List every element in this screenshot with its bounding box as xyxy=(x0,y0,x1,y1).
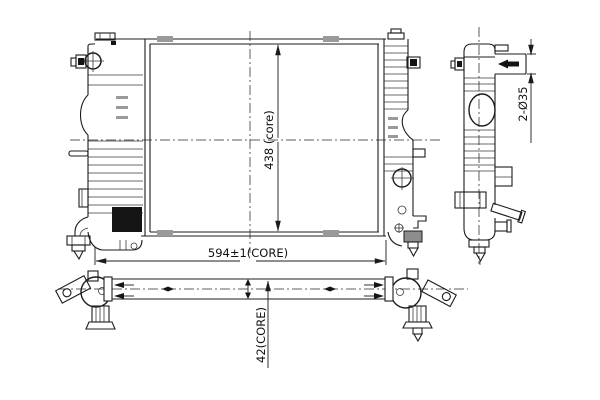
left-tank-ribs xyxy=(88,75,143,213)
drawing-canvas: 438 (core) 594±1(CORE) xyxy=(0,0,600,400)
top-right-fitting xyxy=(364,269,456,341)
side-bracket xyxy=(455,192,486,208)
lower-mount-block xyxy=(112,207,142,232)
centerline-marker xyxy=(162,287,174,292)
side-stub-lower xyxy=(495,222,507,231)
top-clip-left xyxy=(157,36,173,42)
front-view: 438 (core) 594±1(CORE) xyxy=(67,29,442,265)
top-nub xyxy=(495,45,508,51)
side-pin xyxy=(69,151,88,156)
depth-dimension: 42(CORE) xyxy=(245,279,268,368)
lower-bracket xyxy=(413,216,426,228)
dim-core-height: 438 (core) xyxy=(262,110,276,170)
core xyxy=(96,36,386,236)
side-bracket xyxy=(79,189,88,207)
side-view: 2-Ø35 xyxy=(451,27,536,265)
side-ribs xyxy=(464,78,495,171)
small-boss xyxy=(394,223,404,233)
top-clip-right xyxy=(323,36,339,42)
dim-pipe-diameter: 2-Ø35 xyxy=(516,86,530,121)
sensor-boss xyxy=(391,167,414,190)
tank-top-cap xyxy=(464,44,495,57)
inlet-pipe xyxy=(495,54,526,74)
centerline-marker xyxy=(324,287,336,292)
flow-arrow xyxy=(498,60,508,69)
upper-fitting xyxy=(407,57,420,68)
left-tank xyxy=(67,33,143,259)
drain-plug xyxy=(67,217,90,259)
radiator-technical-drawing: 438 (core) 594±1(CORE) xyxy=(0,0,600,400)
right-tank-ribs xyxy=(384,46,413,171)
side-stub-upper xyxy=(495,167,512,186)
side-left-fitting xyxy=(451,58,464,70)
outlet-fitting xyxy=(404,231,422,256)
bottom-clip-right xyxy=(323,230,339,236)
bottom-clip-left xyxy=(157,230,173,236)
side-stub xyxy=(413,149,425,157)
right-tank xyxy=(384,29,426,256)
dim-core-depth: 42(CORE) xyxy=(254,307,268,363)
top-view: 42(CORE) xyxy=(56,269,468,368)
fan-shroud-hole xyxy=(469,94,495,126)
top-left-fitting xyxy=(56,271,134,329)
dim-core-width: 594±1(CORE) xyxy=(208,246,288,260)
